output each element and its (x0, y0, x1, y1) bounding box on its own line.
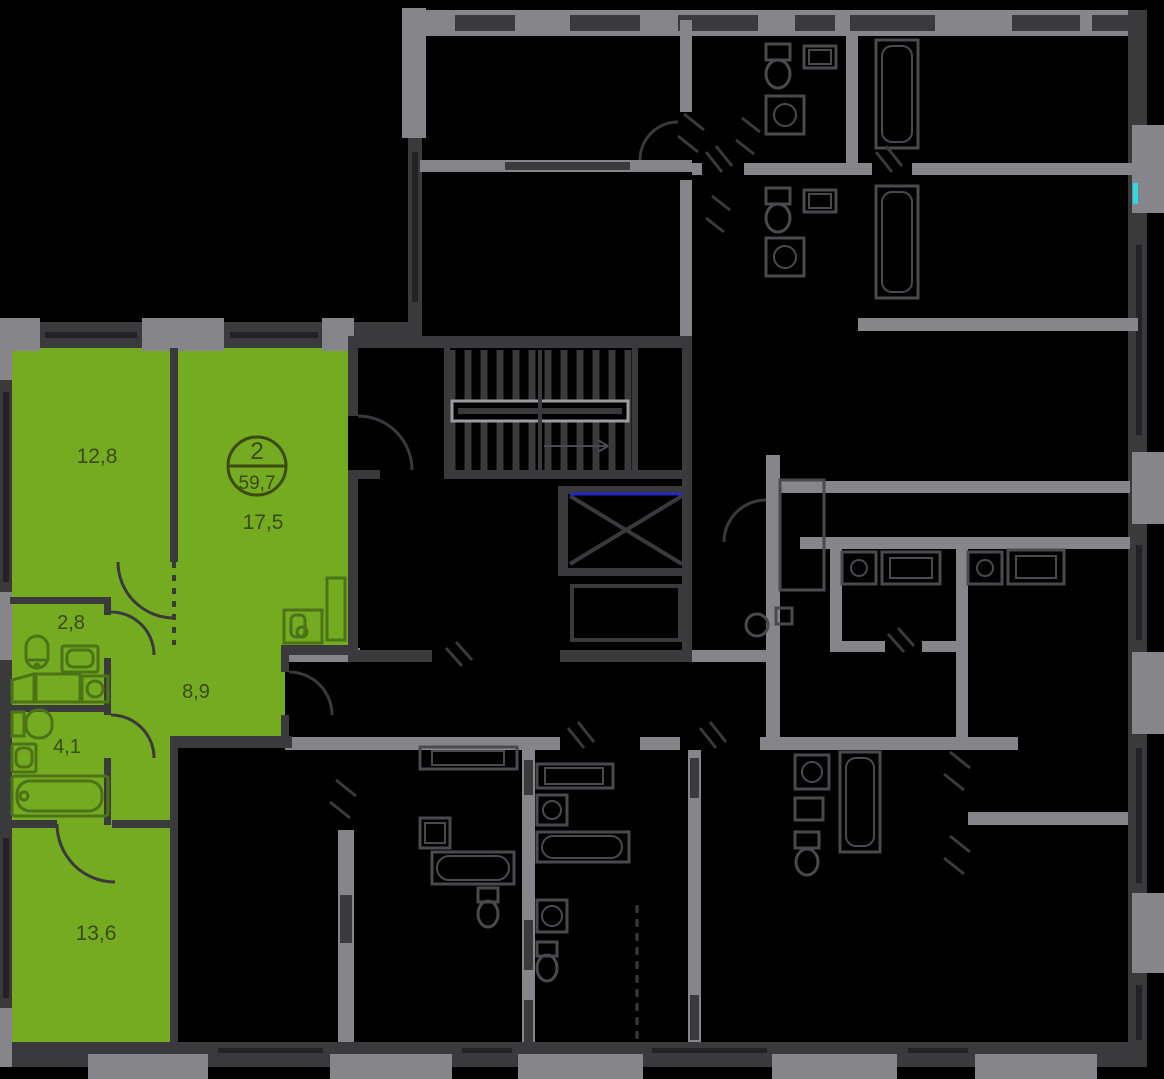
room-label-bathroom: 4,1 (53, 736, 81, 758)
room-label-hallway: 8,9 (182, 681, 210, 703)
toilet-tank (766, 44, 790, 60)
bath-bottom-right (795, 752, 880, 875)
room-label-bedroom-2: 13,6 (76, 922, 117, 945)
badge-total-area: 59,7 (239, 473, 276, 494)
toilet-bowl (766, 60, 790, 88)
door-arc-entrance (289, 672, 332, 715)
washer (766, 96, 804, 134)
stair-core (348, 336, 824, 662)
stairwell-door-arc (358, 416, 412, 470)
stairs (444, 348, 638, 472)
entrance-marker (1133, 183, 1138, 204)
garbage-chute (746, 614, 768, 636)
kitchen-bath-bottom-mid (537, 764, 629, 981)
bathroom-cluster-mid (766, 186, 918, 298)
floor-plan-canvas: 12,8 17,5 2,8 8,9 4,1 13,6 2 59,7 (0, 0, 1164, 1079)
washer (795, 755, 829, 789)
room-label-wc: 2,8 (57, 612, 85, 634)
elevator-shaft (558, 486, 692, 576)
elevator-cross (570, 496, 682, 564)
elevator-machine-room (572, 586, 680, 640)
kitchen-bath-bottom-left (420, 747, 517, 927)
bathroom-cluster-top (766, 40, 918, 148)
room-label-bedroom-1: 12,8 (77, 445, 118, 468)
room-label-living-room: 17,5 (243, 511, 284, 534)
floor-plan: 12,8 17,5 2,8 8,9 4,1 13,6 2 59,7 (0, 0, 1164, 1079)
apartment-badge: 2 59,7 (228, 437, 286, 495)
badge-room-count: 2 (250, 438, 263, 465)
kitchen-counters-right (842, 550, 1064, 584)
